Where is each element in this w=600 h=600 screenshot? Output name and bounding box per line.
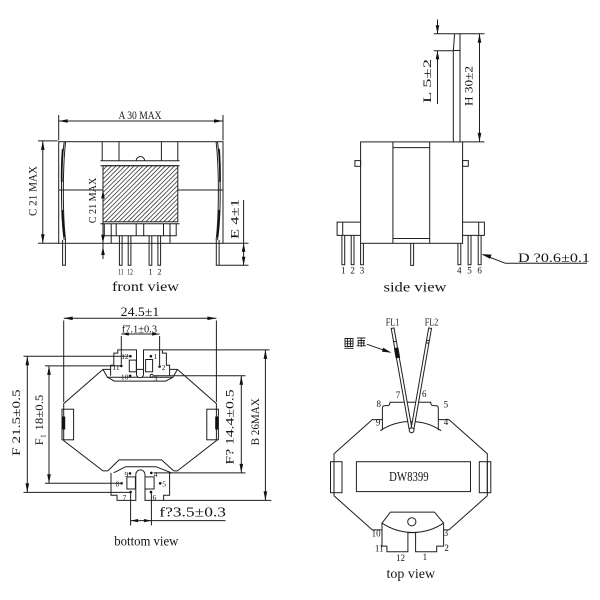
svg-text:C 21 MAX: C 21 MAX	[87, 178, 99, 224]
svg-text:B 26MAX: B 26MAX	[248, 398, 262, 445]
svg-text:10: 10	[372, 529, 382, 539]
svg-text:24.5±1: 24.5±1	[121, 304, 160, 319]
svg-text:11: 11	[375, 543, 384, 553]
svg-text:10: 10	[121, 373, 129, 382]
svg-text:11: 11	[118, 268, 124, 277]
svg-text:4: 4	[444, 417, 449, 427]
svg-text:11: 11	[112, 363, 119, 372]
svg-text:6: 6	[422, 389, 427, 399]
svg-text:D ?0.6±0.1: D ?0.6±0.1	[518, 250, 590, 265]
svg-text:F₁ 18±0.5: F₁ 18±0.5	[32, 395, 46, 446]
svg-text:3: 3	[154, 374, 158, 383]
svg-text:6: 6	[477, 266, 482, 276]
svg-text:E 4±1: E 4±1	[230, 199, 242, 239]
svg-text:1: 1	[423, 552, 428, 562]
svg-text:8: 8	[377, 399, 382, 409]
svg-text:2: 2	[444, 543, 449, 553]
svg-text:9: 9	[125, 470, 129, 479]
svg-text:2: 2	[162, 363, 166, 372]
svg-text:12: 12	[396, 553, 405, 563]
svg-text:H 30±2: H 30±2	[461, 66, 475, 106]
svg-text:1: 1	[341, 266, 346, 276]
svg-text:9: 9	[376, 417, 381, 427]
svg-text:A 30 MAX: A 30 MAX	[119, 108, 162, 122]
svg-text:3: 3	[360, 266, 365, 276]
svg-text:1: 1	[149, 268, 153, 277]
svg-text:FL2: FL2	[425, 318, 439, 329]
svg-text:6: 6	[153, 493, 157, 502]
svg-text:DW8399: DW8399	[389, 470, 429, 485]
svg-text:4: 4	[154, 470, 158, 479]
svg-text:5: 5	[467, 266, 472, 276]
svg-text:4: 4	[457, 266, 462, 276]
svg-text:bottom view: bottom view	[114, 534, 179, 549]
svg-text:8: 8	[115, 480, 119, 489]
svg-text:5: 5	[162, 480, 166, 489]
svg-text:f7.1±0.3: f7.1±0.3	[122, 324, 158, 336]
svg-text:front view: front view	[112, 280, 180, 295]
svg-text:f?3.5±0.3: f?3.5±0.3	[159, 505, 226, 520]
svg-text:F 21.5±0.5: F 21.5±0.5	[9, 389, 23, 456]
svg-text:F? 14.4±0.5: F? 14.4±0.5	[222, 389, 236, 464]
svg-text:2: 2	[158, 268, 162, 277]
svg-text:2: 2	[350, 266, 355, 276]
svg-text:3: 3	[444, 528, 449, 538]
svg-text:5: 5	[444, 399, 449, 409]
svg-text:7: 7	[396, 390, 401, 400]
svg-text:L 5±2: L 5±2	[420, 59, 434, 103]
svg-text:C 21 MAX: C 21 MAX	[28, 165, 40, 216]
svg-text:FL1: FL1	[386, 318, 400, 329]
svg-text:12: 12	[127, 268, 133, 277]
svg-text:1: 1	[154, 352, 158, 361]
svg-text:7: 7	[123, 493, 127, 502]
svg-text:side view: side view	[384, 281, 448, 296]
svg-text:top view: top view	[387, 567, 436, 582]
